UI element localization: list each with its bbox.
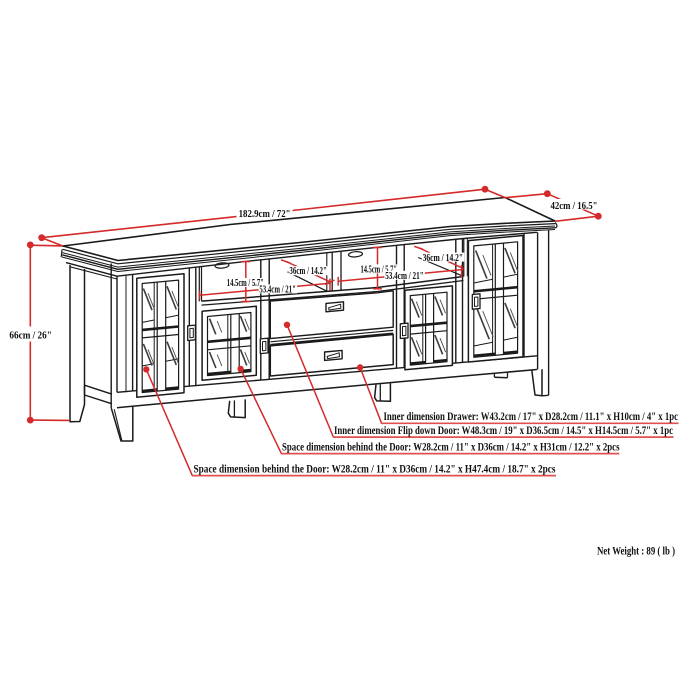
- svg-text:36cm / 14.2": 36cm / 14.2": [289, 266, 327, 277]
- svg-text:42cm / 16.5": 42cm / 16.5": [551, 201, 598, 212]
- svg-text:Inner dimension Flip down Door: Inner dimension Flip down Door: W48.3cm …: [334, 425, 673, 437]
- svg-text:53.4cm / 21": 53.4cm / 21": [385, 271, 424, 282]
- svg-text:53.4cm / 21": 53.4cm / 21": [259, 285, 296, 296]
- svg-text:182.9cm / 72": 182.9cm / 72": [239, 209, 291, 220]
- svg-text:66cm / 26": 66cm / 26": [9, 330, 52, 341]
- svg-text:Inner dimension Drawer: W43.2c: Inner dimension Drawer: W43.2cm / 17" x …: [384, 411, 679, 423]
- svg-text:36cm / 14.2": 36cm / 14.2": [423, 253, 464, 264]
- svg-text:Space dimension behind the Doo: Space dimension behind the Door: W28.2cm…: [194, 463, 556, 475]
- svg-text:Net Weight : 89 ( lb ): Net Weight : 89 ( lb ): [597, 546, 675, 558]
- svg-text:Space dimension behind the Doo: Space dimension behind the Door: W28.2cm…: [282, 441, 620, 453]
- svg-text:14.5cm / 5.7": 14.5cm / 5.7": [227, 278, 264, 289]
